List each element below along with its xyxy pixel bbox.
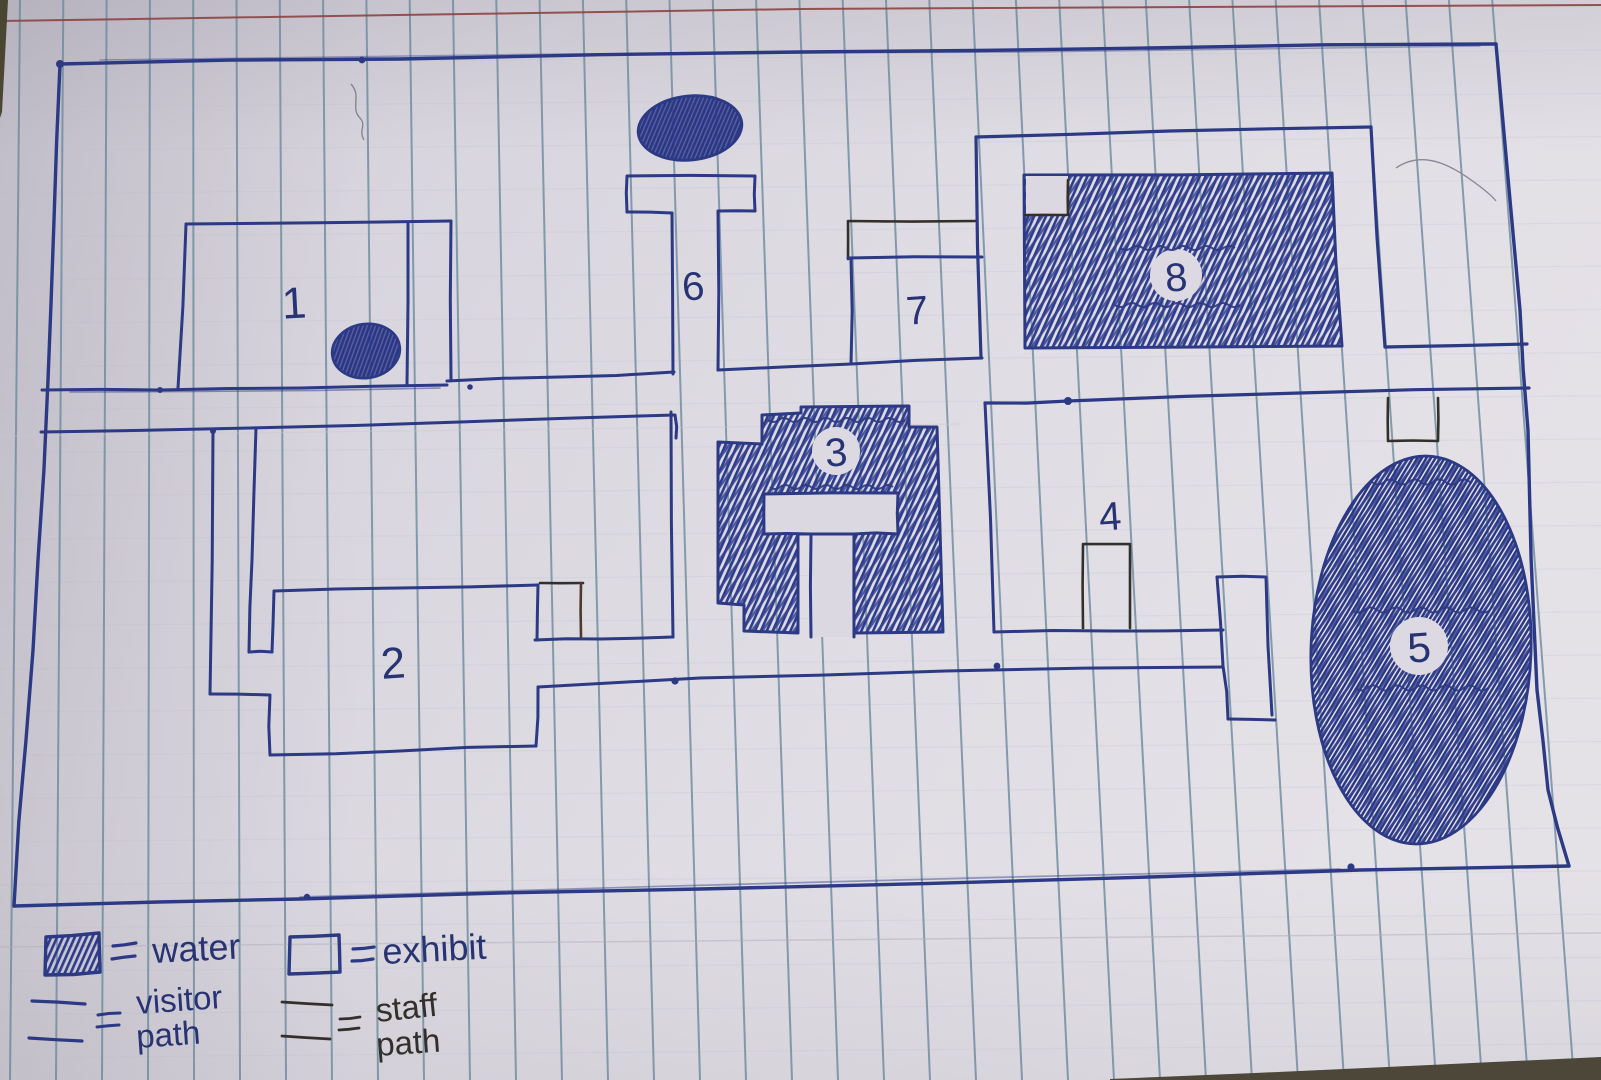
svg-text:path: path	[375, 1022, 442, 1063]
svg-text:2: 2	[379, 638, 407, 689]
svg-text:water: water	[150, 925, 241, 971]
svg-text:4: 4	[1098, 494, 1123, 539]
svg-text:8: 8	[1164, 255, 1189, 300]
svg-text:3: 3	[824, 430, 849, 475]
svg-text:5: 5	[1406, 623, 1433, 672]
svg-text:exhibit: exhibit	[381, 926, 487, 972]
svg-text:path: path	[135, 1014, 202, 1055]
svg-text:6: 6	[680, 264, 706, 310]
svg-text:7: 7	[905, 288, 930, 333]
svg-text:1: 1	[281, 278, 308, 328]
